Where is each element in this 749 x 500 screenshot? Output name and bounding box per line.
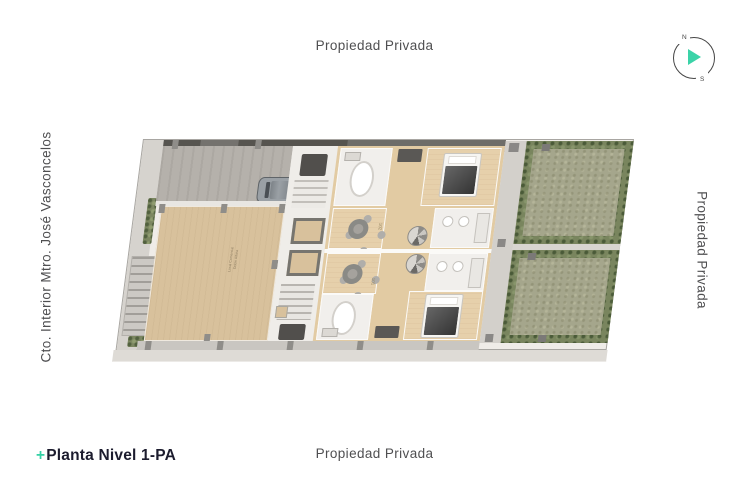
bathroom-unit-top: [430, 208, 494, 248]
bathroom-tub-unit-bottom: [316, 294, 374, 340]
wall-pillar: [287, 341, 294, 350]
sink: [442, 216, 454, 227]
compass-north: N: [682, 34, 687, 41]
sidewalk-bottom: [112, 350, 608, 362]
label-street-left: Cto. Interior Mtro. José Vasconcelos: [39, 132, 54, 363]
terrace-note: Local Comercial Doble Altura: [225, 230, 242, 290]
stairwell-void-upper: [299, 154, 328, 176]
bed: [420, 294, 464, 338]
title-plus-accent: +: [36, 447, 45, 464]
terrace-pillar: [220, 204, 227, 213]
wall-pillar: [427, 341, 434, 350]
bathtub: [347, 161, 376, 197]
garden-planter: [538, 335, 547, 342]
bed: [438, 153, 482, 197]
vanity: [468, 258, 485, 288]
grass: [510, 258, 611, 335]
sink: [436, 261, 448, 272]
gate-pillar: [255, 140, 262, 149]
wardrobe: [374, 326, 400, 338]
unit-number-top: 102: [377, 223, 383, 231]
spiral-stair-unit-top: [406, 226, 429, 246]
label-propiedad-privada-top: Propiedad Privada: [0, 38, 749, 53]
garden-unit-bottom: [501, 250, 620, 343]
wardrobe: [397, 149, 423, 162]
title-text: Planta Nivel 1-PA: [46, 447, 176, 464]
elevator-1: [290, 218, 325, 244]
sink: [452, 261, 464, 272]
shower: [321, 328, 338, 337]
garden-planter: [541, 144, 550, 151]
shower: [344, 152, 361, 161]
wall-pillar: [145, 341, 152, 350]
dining-area-unit-bottom: [322, 253, 381, 294]
grass: [522, 149, 624, 236]
wall-pillar: [357, 341, 364, 350]
compass-south: S: [700, 76, 704, 83]
label-propiedad-privada-right: Propiedad Privada: [695, 191, 710, 309]
garden-planter: [527, 253, 536, 260]
stair-landing: [275, 306, 289, 318]
dining-table: [347, 219, 370, 239]
bedroom-unit-top: [420, 148, 502, 206]
gate-pillar: [172, 140, 179, 149]
stairwell-void-lower: [278, 324, 306, 340]
vanity: [473, 213, 490, 243]
apartment-units: 102 101: [313, 146, 505, 341]
terrace: Local Comercial Doble Altura: [144, 206, 286, 341]
bedroom-unit-bottom: [403, 291, 483, 340]
compass-needle-icon: [688, 49, 701, 65]
driveway: [156, 146, 293, 201]
spiral-stair-unit-bottom: [404, 254, 427, 274]
sink: [458, 216, 470, 227]
floor-plan: Local Comercial Doble Altura: [114, 139, 634, 362]
elevator-2: [286, 250, 321, 276]
terrace-pillar: [158, 204, 165, 213]
stairs-upper: [291, 180, 329, 208]
unit-number-bottom: 101: [370, 278, 376, 286]
wall-pillar: [217, 341, 224, 350]
dining-table: [341, 264, 364, 284]
bathroom-tub-unit-top: [333, 148, 393, 206]
page-title: +Planta Nivel 1-PA: [36, 447, 176, 465]
garden-unit-top: [513, 141, 633, 244]
plot-outline: Local Comercial Doble Altura: [116, 139, 634, 350]
compass-icon: N S: [670, 34, 718, 82]
bathroom-unit-bottom: [424, 253, 488, 291]
